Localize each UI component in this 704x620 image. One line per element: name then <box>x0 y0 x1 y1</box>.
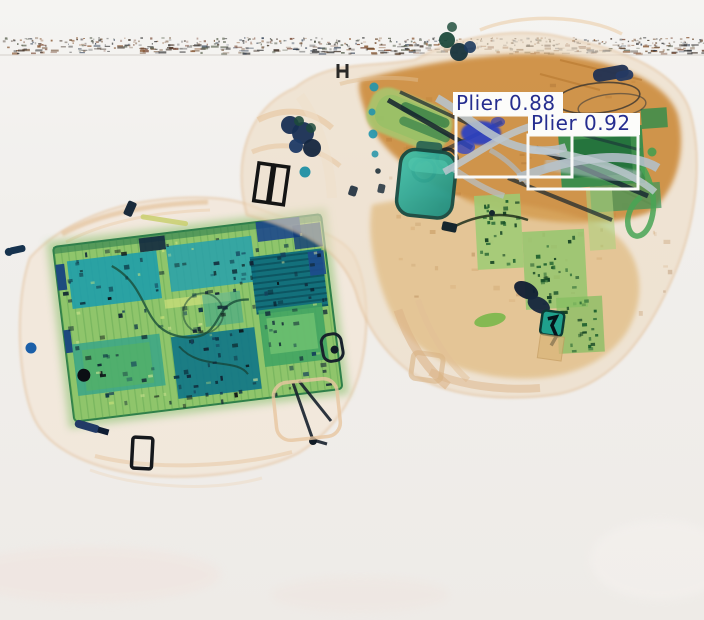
shield-plate <box>82 342 154 391</box>
xray-scan-image: Plier 0.88 Plier 0.92 <box>0 0 704 620</box>
laptop-mainboard <box>46 207 349 428</box>
cable-knot <box>489 210 495 216</box>
shield-plate <box>266 313 318 355</box>
detection-label: Plier 0.92 <box>531 111 631 135</box>
printed-pack <box>474 194 524 270</box>
plier-joint-blue <box>491 117 505 127</box>
metal-button <box>26 343 37 354</box>
film-smudge <box>270 577 450 613</box>
xray-scan-viewport: Plier 0.88 Plier 0.92 <box>0 0 704 620</box>
lighter-outline <box>131 437 153 469</box>
green-tube-cap <box>648 148 657 157</box>
